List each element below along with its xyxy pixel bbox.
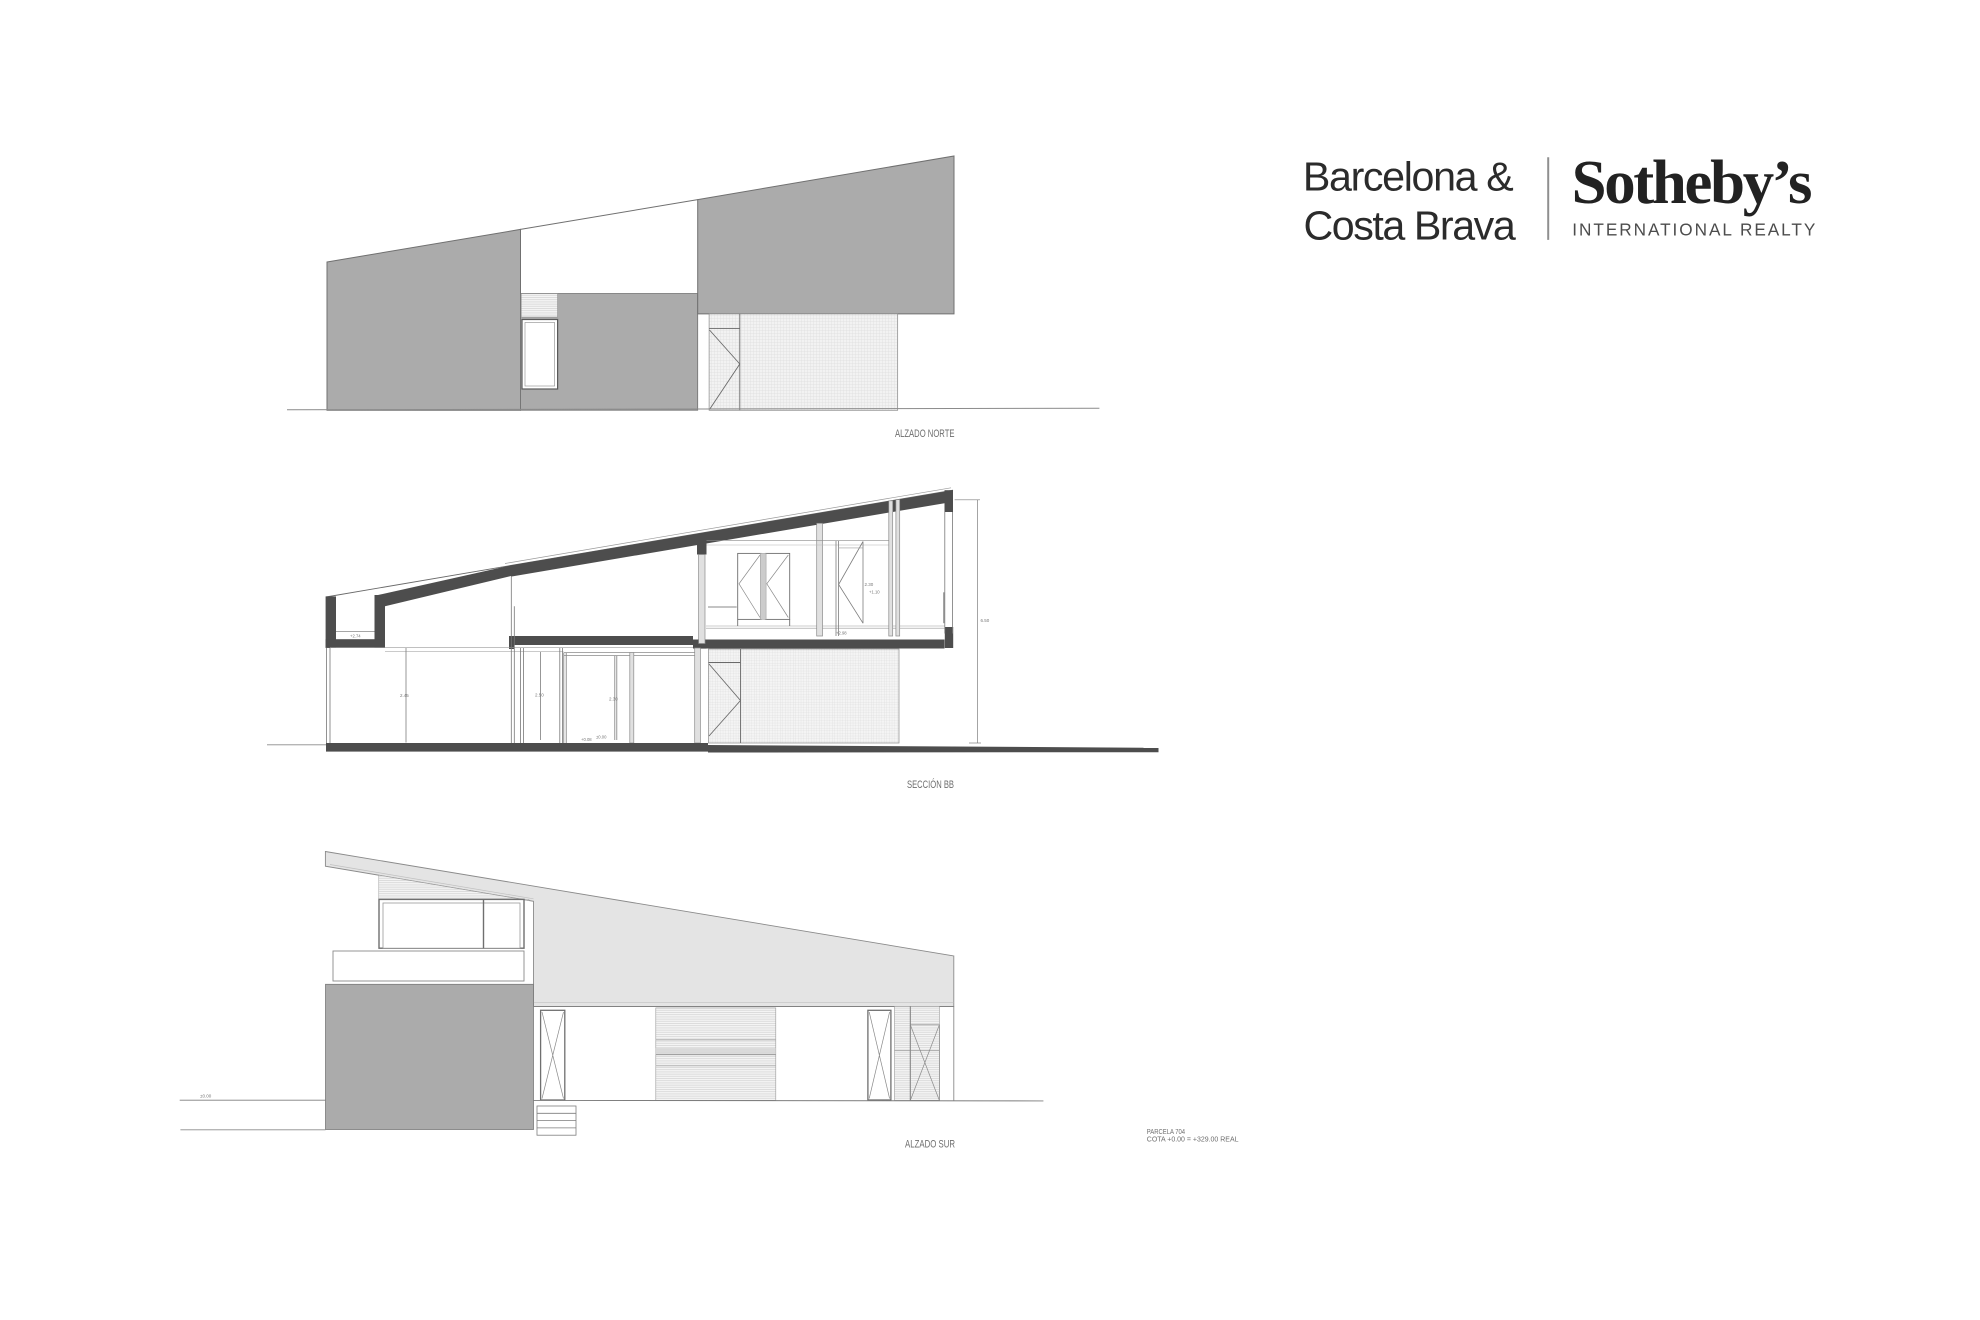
svg-text:+1.10: +1.10 bbox=[869, 590, 880, 595]
svg-text:2.45: 2.45 bbox=[400, 693, 409, 698]
svg-text:+2.74: +2.74 bbox=[350, 634, 361, 639]
svg-text:PARCELA 704: PARCELA 704 bbox=[1147, 1129, 1185, 1136]
svg-text:Sotheby’s: Sotheby’s bbox=[1572, 147, 1811, 217]
svg-text:2.30: 2.30 bbox=[609, 697, 618, 702]
svg-text:ALZADO NORTE: ALZADO NORTE bbox=[895, 428, 955, 440]
svg-text:+0.08: +0.08 bbox=[581, 737, 592, 742]
svg-text:±0.00: ±0.00 bbox=[596, 735, 607, 740]
svg-text:Barcelona &: Barcelona & bbox=[1303, 154, 1513, 200]
svg-text:SECCIÓN BB: SECCIÓN BB bbox=[907, 778, 954, 791]
svg-text:2.50: 2.50 bbox=[535, 693, 544, 698]
svg-text:+2.98: +2.98 bbox=[836, 631, 847, 636]
svg-text:COTA +0.00 = +329.00 REAL: COTA +0.00 = +329.00 REAL bbox=[1147, 1137, 1239, 1144]
svg-text:Costa Brava: Costa Brava bbox=[1304, 202, 1516, 248]
svg-text:ALZADO SUR: ALZADO SUR bbox=[905, 1139, 955, 1151]
svg-text:2.30: 2.30 bbox=[865, 582, 874, 587]
svg-text:INTERNATIONAL REALTY: INTERNATIONAL REALTY bbox=[1572, 220, 1817, 240]
svg-text:6.50: 6.50 bbox=[981, 618, 990, 623]
svg-text:±0.00: ±0.00 bbox=[200, 1094, 212, 1099]
